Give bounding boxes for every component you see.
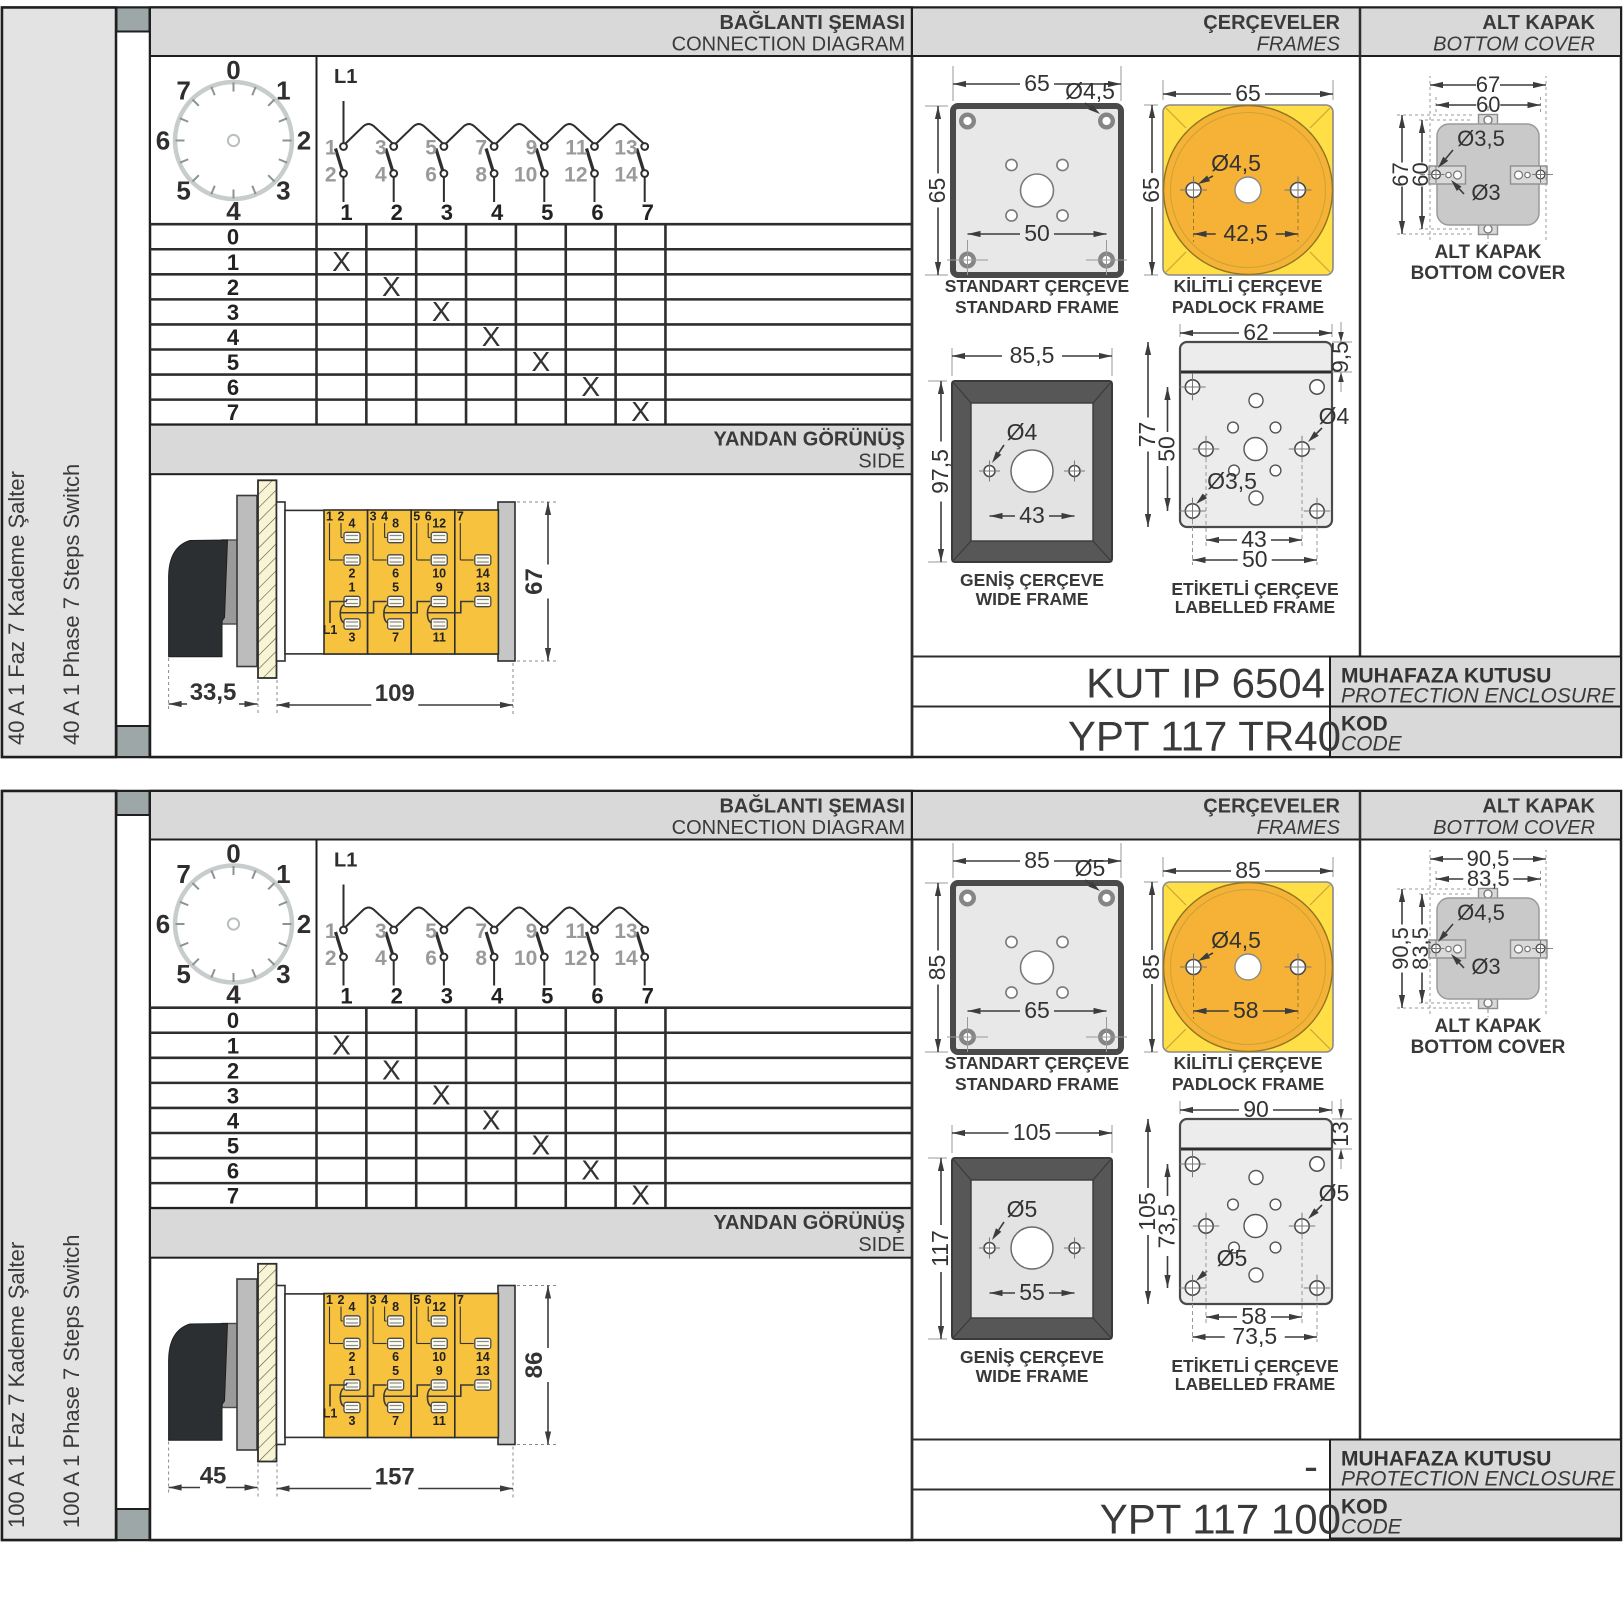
svg-text:6: 6 [425,947,437,970]
svg-text:YANDAN GÖRÜNÜŞ: YANDAN GÖRÜNÜŞ [713,428,905,451]
svg-text:3: 3 [441,200,453,225]
svg-text:2: 2 [297,909,311,939]
svg-text:Ø5: Ø5 [1007,1196,1038,1222]
svg-text:3: 3 [227,1083,239,1108]
svg-text:6: 6 [392,1350,399,1364]
svg-text:9: 9 [526,137,538,160]
svg-text:X: X [332,246,351,277]
svg-text:CODE: CODE [1341,1516,1403,1539]
svg-text:1: 1 [325,920,337,943]
svg-text:X: X [532,346,551,377]
svg-text:PROTECTION ENCLOSURE: PROTECTION ENCLOSURE [1341,1468,1616,1491]
svg-text:X: X [382,1054,401,1085]
svg-text:109: 109 [375,680,415,707]
svg-text:Ø3: Ø3 [1471,180,1500,205]
svg-text:6: 6 [591,200,603,225]
svg-text:65: 65 [924,178,950,204]
svg-text:KUT IP 6504: KUT IP 6504 [1086,660,1325,707]
svg-text:Ø4,5: Ø4,5 [1211,927,1261,953]
svg-text:60: 60 [1476,92,1500,117]
svg-text:2: 2 [325,164,337,187]
svg-text:Ø5: Ø5 [1319,1180,1350,1206]
svg-text:3: 3 [227,300,239,325]
svg-text:50: 50 [1024,220,1050,246]
svg-text:4: 4 [349,1300,356,1314]
svg-text:40 A 1 Phase 7 Steps Switch: 40 A 1 Phase 7 Steps Switch [59,464,84,745]
svg-text:11: 11 [433,1414,446,1428]
svg-text:14: 14 [614,164,638,187]
svg-text:CONNECTION DIAGRAM: CONNECTION DIAGRAM [672,34,905,56]
svg-text:-: - [1304,1443,1318,1490]
svg-text:Ø4: Ø4 [1319,403,1350,429]
svg-text:7: 7 [642,200,654,225]
svg-text:3: 3 [370,510,377,524]
svg-text:85: 85 [1138,954,1164,980]
svg-text:X: X [332,1029,351,1060]
svg-text:7: 7 [176,859,190,889]
svg-text:Ø4: Ø4 [1007,419,1038,445]
svg-text:62: 62 [1243,319,1269,345]
svg-text:5: 5 [541,984,553,1009]
svg-text:7: 7 [176,76,190,106]
svg-text:PADLOCK FRAME: PADLOCK FRAME [1172,1074,1324,1094]
svg-text:13: 13 [614,137,637,160]
svg-text:Ø3,5: Ø3,5 [1207,468,1257,494]
svg-text:4: 4 [491,200,504,225]
svg-text:73,5: 73,5 [1232,1323,1277,1349]
svg-text:2: 2 [227,275,239,300]
svg-text:L1: L1 [334,850,357,872]
svg-text:4: 4 [227,1108,240,1133]
svg-text:65: 65 [1138,177,1164,203]
svg-text:X: X [432,1079,451,1110]
svg-text:4: 4 [226,196,241,226]
svg-text:BAĞLANTI ŞEMASI: BAĞLANTI ŞEMASI [719,10,905,34]
svg-text:7: 7 [642,984,654,1009]
svg-text:6: 6 [227,1159,239,1184]
svg-text:5: 5 [392,1364,399,1378]
svg-text:4: 4 [381,510,388,524]
svg-text:9,5: 9,5 [1327,341,1353,373]
svg-text:ALT KAPAK: ALT KAPAK [1482,796,1595,818]
svg-text:2: 2 [349,1350,356,1364]
svg-text:2: 2 [391,200,403,225]
svg-text:YPT 117 100: YPT 117 100 [1100,1496,1341,1543]
svg-text:5: 5 [541,200,553,225]
svg-text:Ø3: Ø3 [1471,954,1500,979]
svg-text:14: 14 [476,567,490,581]
svg-text:14: 14 [476,1350,490,1364]
svg-text:GENİŞ ÇERÇEVE: GENİŞ ÇERÇEVE [960,1347,1104,1367]
svg-text:6: 6 [156,909,170,939]
svg-text:LABELLED FRAME: LABELLED FRAME [1175,597,1335,617]
svg-text:12: 12 [564,947,587,970]
svg-text:X: X [581,1155,600,1186]
svg-text:7: 7 [475,920,487,943]
svg-text:4: 4 [227,325,240,350]
svg-text:FRAMES: FRAMES [1257,817,1341,839]
svg-text:60: 60 [1408,162,1433,186]
svg-text:86: 86 [521,1352,548,1379]
svg-text:CODE: CODE [1341,733,1403,756]
svg-text:5: 5 [227,1134,239,1159]
svg-text:FRAMES: FRAMES [1257,34,1341,56]
svg-text:12: 12 [564,164,587,187]
svg-text:13: 13 [614,920,637,943]
svg-text:PADLOCK FRAME: PADLOCK FRAME [1172,297,1324,317]
svg-text:2: 2 [227,1058,239,1083]
svg-text:157: 157 [375,1464,415,1491]
svg-text:1: 1 [326,510,333,524]
svg-text:ETİKETLİ ÇERÇEVE: ETİKETLİ ÇERÇEVE [1171,1356,1338,1376]
svg-text:ALT KAPAK: ALT KAPAK [1435,1016,1542,1037]
svg-text:3: 3 [349,1414,356,1428]
svg-text:6: 6 [227,375,239,400]
svg-text:1: 1 [325,137,337,160]
svg-text:85: 85 [1024,847,1050,873]
svg-text:55: 55 [1019,1279,1045,1305]
svg-text:43: 43 [1019,502,1045,528]
svg-text:83,5: 83,5 [1408,927,1433,970]
svg-text:4: 4 [349,517,356,531]
svg-text:Ø5: Ø5 [1217,1245,1248,1271]
svg-text:9: 9 [436,1364,443,1378]
svg-text:Ø4,5: Ø4,5 [1211,150,1261,176]
svg-text:6: 6 [425,510,432,524]
svg-text:4: 4 [375,947,387,970]
svg-text:5: 5 [413,1293,420,1307]
svg-text:BOTTOM COVER: BOTTOM COVER [1433,817,1595,839]
svg-text:13: 13 [476,1364,490,1378]
svg-text:1: 1 [340,984,352,1009]
svg-text:3: 3 [441,984,453,1009]
svg-text:BOTTOM COVER: BOTTOM COVER [1411,263,1566,284]
svg-text:X: X [631,1180,650,1211]
svg-text:GENİŞ ÇERÇEVE: GENİŞ ÇERÇEVE [960,570,1104,590]
svg-text:STANDART ÇERÇEVE: STANDART ÇERÇEVE [945,1053,1129,1073]
svg-text:5: 5 [227,350,239,375]
svg-text:1: 1 [227,250,239,275]
svg-text:ÇERÇEVELER: ÇERÇEVELER [1203,12,1340,34]
svg-text:4: 4 [226,980,241,1010]
svg-text:SIDE: SIDE [858,1234,905,1256]
svg-text:58: 58 [1233,997,1259,1023]
svg-text:14: 14 [614,947,638,970]
svg-text:7: 7 [227,400,239,425]
svg-text:L1: L1 [334,66,357,88]
svg-text:1: 1 [349,581,356,595]
svg-text:CONNECTION DIAGRAM: CONNECTION DIAGRAM [672,817,905,839]
svg-text:ALT KAPAK: ALT KAPAK [1482,12,1595,34]
svg-text:73,5: 73,5 [1154,1204,1180,1249]
svg-text:0: 0 [226,55,240,85]
svg-text:X: X [432,296,451,327]
svg-text:40 A 1 Faz 7 Kademe Şalter: 40 A 1 Faz 7 Kademe Şalter [4,471,29,745]
svg-text:8: 8 [475,164,487,187]
svg-text:42,5: 42,5 [1223,220,1268,246]
svg-text:L1: L1 [323,623,338,637]
svg-text:KİLİTLİ ÇERÇEVE: KİLİTLİ ÇERÇEVE [1174,276,1323,296]
svg-text:9: 9 [436,581,443,595]
svg-text:0: 0 [227,225,239,250]
svg-text:11: 11 [433,631,446,645]
svg-text:SIDE: SIDE [858,451,905,473]
svg-text:L1: L1 [323,1407,338,1421]
svg-text:ALT KAPAK: ALT KAPAK [1435,242,1542,263]
svg-text:10: 10 [432,1350,446,1364]
svg-text:12: 12 [432,517,446,531]
svg-text:45: 45 [200,1463,227,1490]
svg-text:117: 117 [927,1230,953,1267]
svg-text:10: 10 [432,567,446,581]
svg-text:100 A 1 Faz 7 Kademe Şalter: 100 A 1 Faz 7 Kademe Şalter [4,1242,29,1528]
svg-text:6: 6 [425,164,437,187]
svg-text:5: 5 [425,137,437,160]
svg-text:33,5: 33,5 [190,679,237,706]
svg-text:ÇERÇEVELER: ÇERÇEVELER [1203,796,1340,818]
svg-text:YANDAN GÖRÜNÜŞ: YANDAN GÖRÜNÜŞ [713,1211,905,1234]
svg-text:7: 7 [457,1293,464,1307]
svg-text:50: 50 [1154,436,1180,462]
svg-text:3: 3 [375,137,387,160]
svg-text:85,5: 85,5 [1010,342,1055,368]
svg-text:4: 4 [375,164,387,187]
svg-text:5: 5 [176,959,190,989]
svg-text:3: 3 [349,631,356,645]
svg-text:83,5: 83,5 [1467,866,1510,891]
svg-text:2: 2 [297,126,311,156]
svg-text:90: 90 [1243,1096,1269,1122]
svg-text:KİLİTLİ ÇERÇEVE: KİLİTLİ ÇERÇEVE [1174,1053,1323,1073]
svg-text:6: 6 [392,567,399,581]
svg-text:7: 7 [227,1184,239,1209]
svg-text:X: X [482,321,501,352]
svg-text:ETİKETLİ ÇERÇEVE: ETİKETLİ ÇERÇEVE [1171,579,1338,599]
svg-text:10: 10 [514,164,537,187]
svg-text:0: 0 [226,839,240,869]
svg-text:Ø5: Ø5 [1075,855,1106,881]
svg-text:85: 85 [1235,857,1261,883]
svg-text:Ø4,5: Ø4,5 [1457,900,1505,925]
svg-text:Ø4,5: Ø4,5 [1065,78,1115,104]
svg-text:1: 1 [340,200,352,225]
svg-text:100 A 1 Phase 7 Steps Switch: 100 A 1 Phase 7 Steps Switch [59,1234,84,1528]
svg-text:7: 7 [475,137,487,160]
svg-text:BAĞLANTI ŞEMASI: BAĞLANTI ŞEMASI [719,794,905,818]
svg-text:YPT 117 TR40: YPT 117 TR40 [1068,713,1341,760]
svg-text:WIDE FRAME: WIDE FRAME [976,589,1089,609]
svg-text:6: 6 [591,984,603,1009]
svg-text:X: X [581,371,600,402]
svg-text:1: 1 [276,76,290,106]
svg-text:1: 1 [326,1293,333,1307]
svg-text:12: 12 [432,1300,446,1314]
svg-text:BOTTOM COVER: BOTTOM COVER [1411,1037,1566,1058]
svg-text:8: 8 [475,947,487,970]
svg-text:5: 5 [425,920,437,943]
svg-text:6: 6 [156,126,170,156]
svg-text:X: X [382,271,401,302]
svg-text:7: 7 [457,510,464,524]
svg-text:5: 5 [176,175,190,205]
svg-text:85: 85 [924,955,950,981]
svg-text:0: 0 [227,1008,239,1033]
svg-text:9: 9 [526,920,538,943]
svg-text:STANDARD FRAME: STANDARD FRAME [955,297,1119,317]
svg-text:50: 50 [1242,546,1268,572]
svg-text:4: 4 [491,984,504,1009]
svg-text:11: 11 [565,920,588,943]
svg-text:3: 3 [370,1293,377,1307]
svg-text:PROTECTION ENCLOSURE: PROTECTION ENCLOSURE [1341,685,1616,708]
svg-text:3: 3 [276,175,290,205]
svg-text:LABELLED FRAME: LABELLED FRAME [1175,1374,1335,1394]
svg-text:WIDE FRAME: WIDE FRAME [976,1366,1089,1386]
svg-text:13: 13 [476,581,490,595]
svg-text:10: 10 [514,947,537,970]
svg-text:1: 1 [349,1364,356,1378]
svg-text:97,5: 97,5 [927,449,953,494]
svg-text:STANDART ÇERÇEVE: STANDART ÇERÇEVE [945,276,1129,296]
svg-text:7: 7 [392,1414,399,1428]
svg-text:65: 65 [1235,80,1261,106]
svg-text:X: X [482,1104,501,1135]
svg-text:8: 8 [392,1300,399,1314]
svg-text:65: 65 [1024,997,1050,1023]
svg-text:67: 67 [521,568,548,595]
svg-text:X: X [631,396,650,427]
svg-text:2: 2 [391,984,403,1009]
svg-text:65: 65 [1024,70,1050,96]
svg-text:2: 2 [325,947,337,970]
svg-text:6: 6 [425,1293,432,1307]
svg-text:8: 8 [392,517,399,531]
svg-text:13: 13 [1327,1121,1353,1147]
svg-text:3: 3 [276,959,290,989]
svg-text:2: 2 [338,510,345,524]
svg-text:7: 7 [392,631,399,645]
svg-text:BOTTOM COVER: BOTTOM COVER [1433,34,1595,56]
svg-text:1: 1 [227,1033,239,1058]
svg-text:105: 105 [1013,1119,1051,1145]
svg-text:1: 1 [276,859,290,889]
svg-text:X: X [532,1130,551,1161]
svg-text:STANDARD FRAME: STANDARD FRAME [955,1074,1119,1094]
svg-text:Ø3,5: Ø3,5 [1457,126,1505,151]
svg-text:5: 5 [413,510,420,524]
svg-text:2: 2 [349,567,356,581]
svg-text:2: 2 [338,1293,345,1307]
svg-text:3: 3 [375,920,387,943]
svg-text:5: 5 [392,581,399,595]
svg-text:4: 4 [381,1293,388,1307]
svg-text:11: 11 [565,137,588,160]
